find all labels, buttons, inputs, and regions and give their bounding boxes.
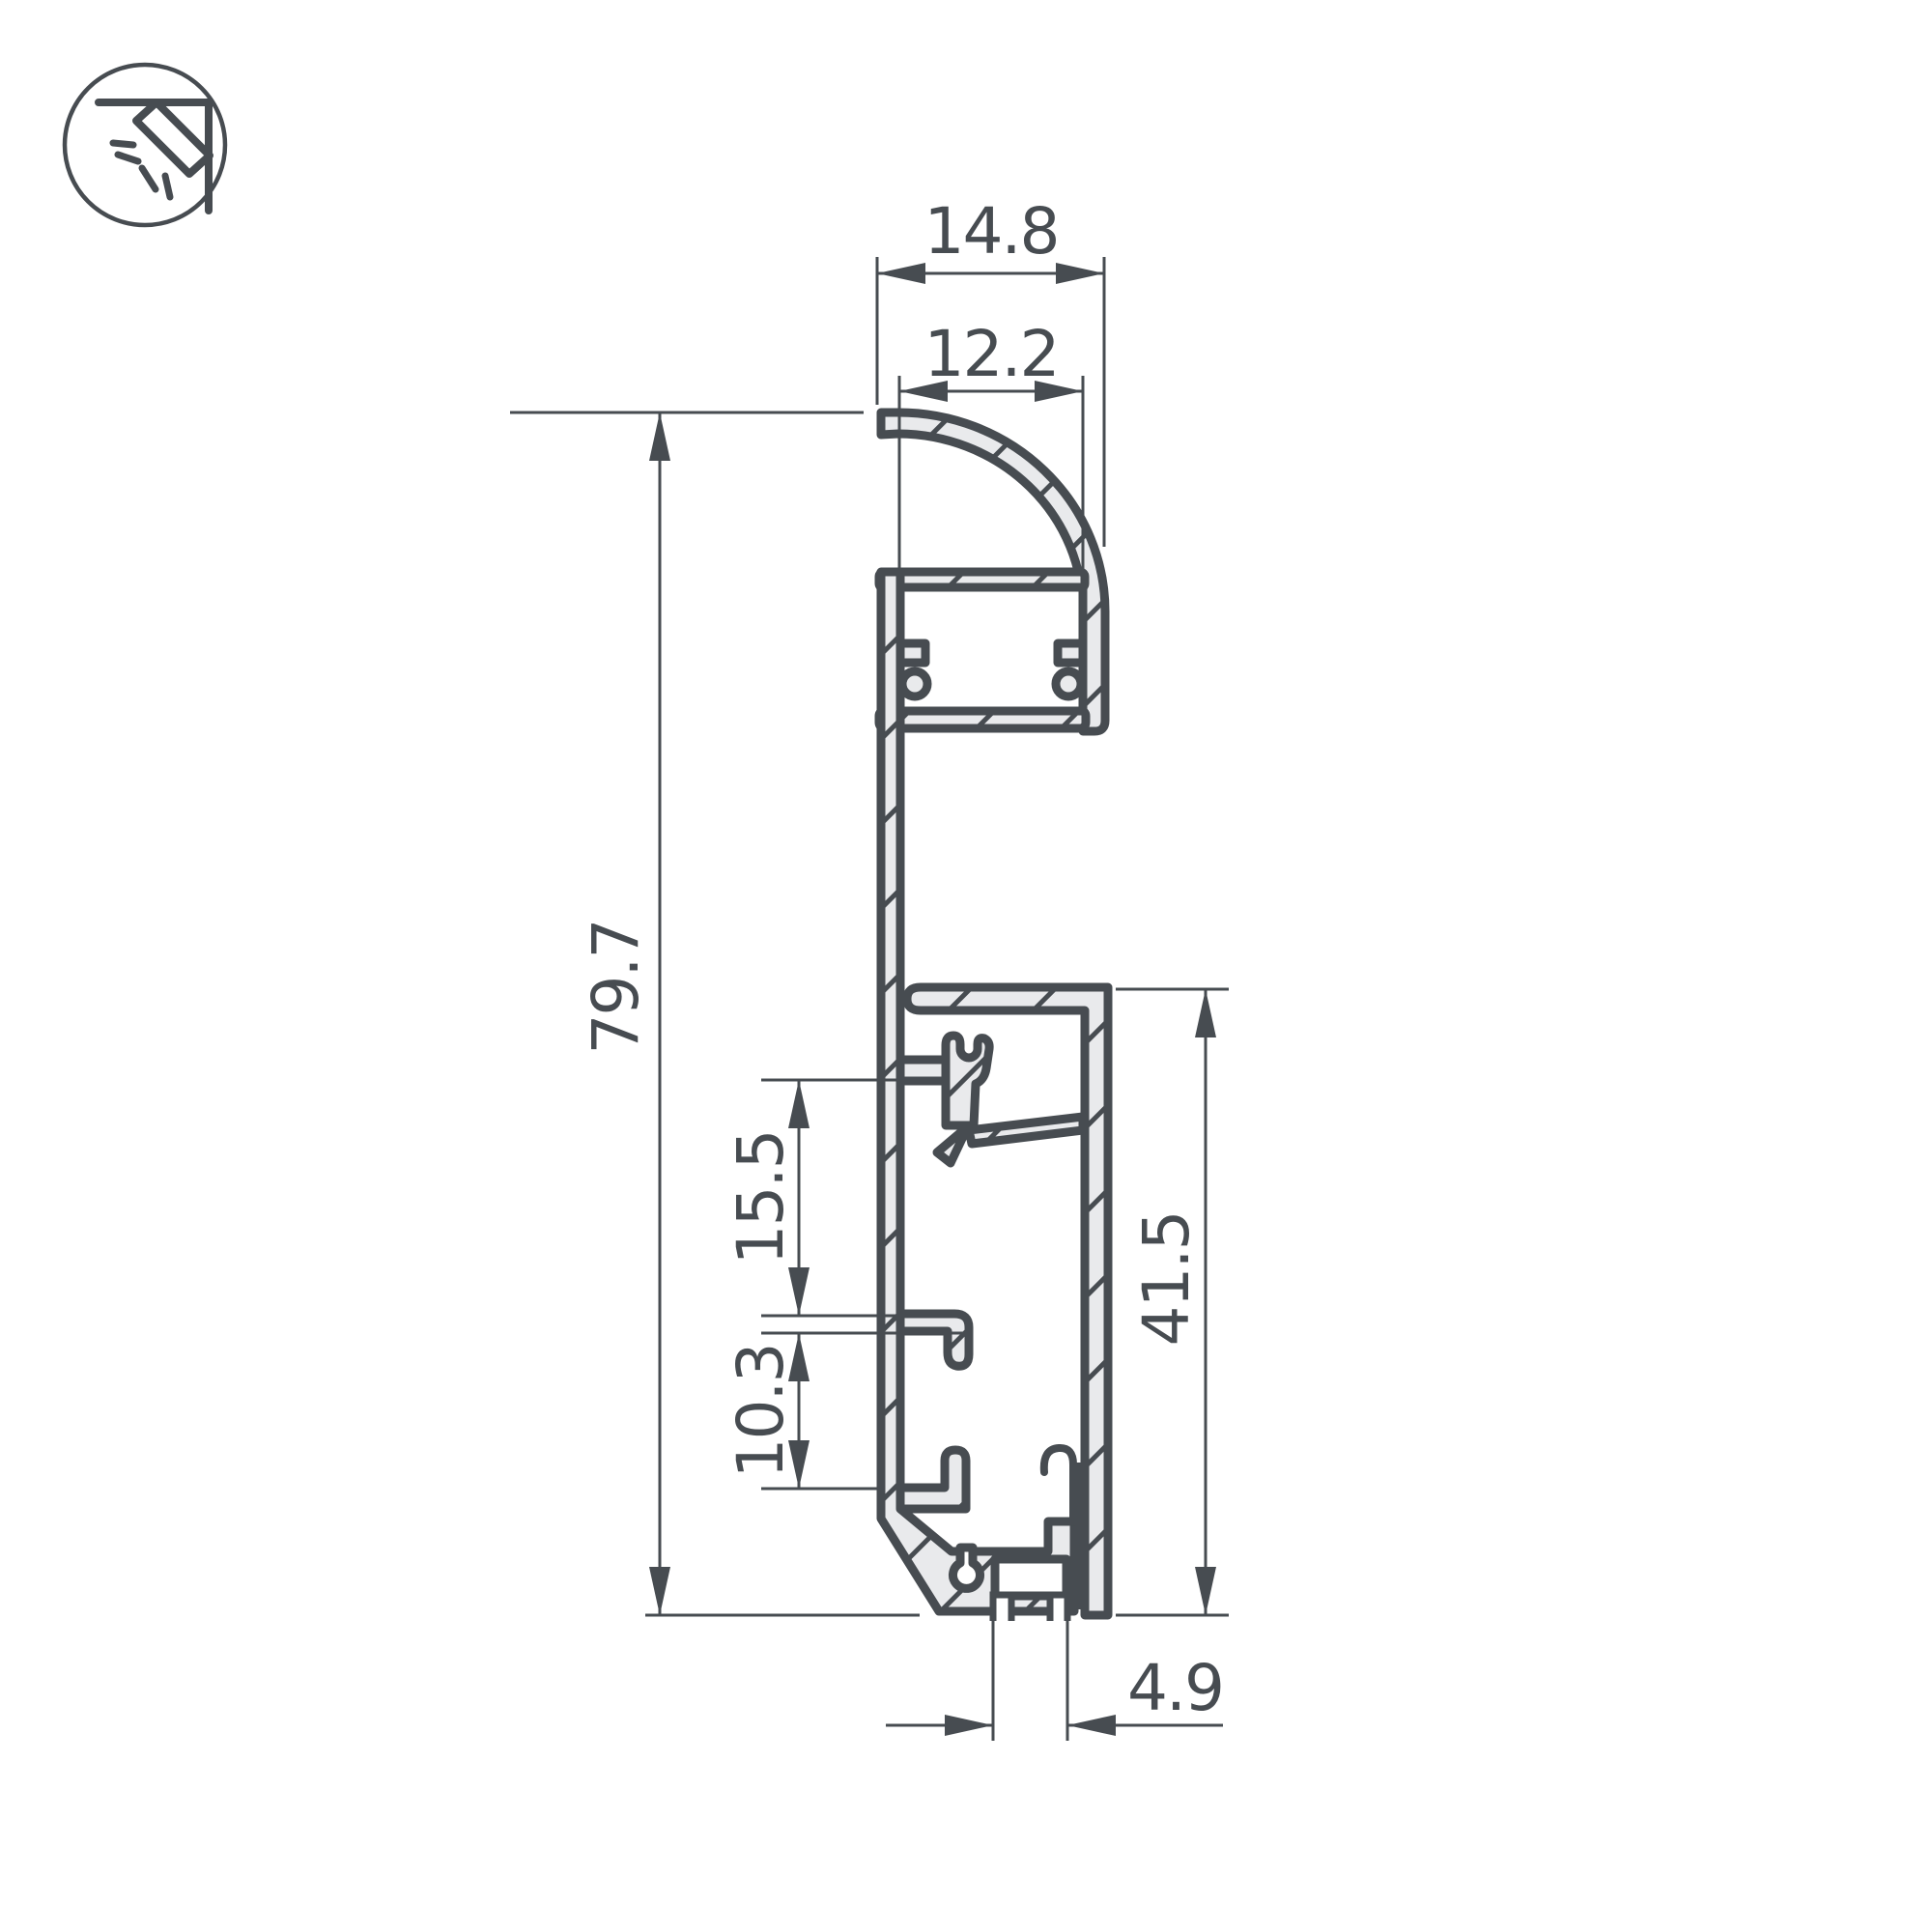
arrow-left: [945, 1715, 993, 1736]
snap-tongue: [1044, 1448, 1073, 1522]
lamp-icon: [136, 102, 210, 174]
middle-hook: [900, 1314, 969, 1366]
dimension-hook-spacing: 10.3: [724, 1333, 810, 1489]
dimension-top-width: 14.8: [877, 194, 1104, 284]
dim-label-top-width: 14.8: [924, 194, 1059, 269]
arrow-top: [649, 412, 670, 461]
dimension-top-inner-width: 12.2: [899, 317, 1083, 402]
bottom-hook: [900, 1450, 966, 1509]
dimension-base-height: 41.5: [1129, 989, 1216, 1615]
dim-label-bottom-slot-width: 4.9: [1127, 1651, 1223, 1725]
leaf-spring: [969, 1117, 1083, 1144]
dimensions: 14.8 12.2 79.7 15.5 10.3: [510, 194, 1229, 1741]
arrow-right: [1056, 263, 1104, 284]
arrow-bottom: [649, 1567, 670, 1615]
arrow-bottom: [788, 1267, 810, 1316]
arrow-top: [788, 1080, 810, 1128]
ceiling-corner-icon: [99, 102, 209, 211]
dim-label-hook-spacing: 10.3: [724, 1345, 798, 1479]
dim-label-top-inner-width: 12.2: [924, 317, 1059, 391]
spring-barb: [937, 1126, 968, 1163]
dimension-clip-to-hook: 15.5: [724, 1080, 810, 1316]
screw-boss: [946, 1036, 989, 1125]
dimension-overall-height: 79.7: [579, 412, 670, 1615]
arrow-left: [877, 263, 925, 284]
foot-screw-port: [953, 1548, 980, 1588]
dim-label-overall-height: 79.7: [579, 921, 653, 1055]
corner-light-icon: [65, 65, 225, 225]
profile-cross-section: [879, 412, 1108, 1621]
dimension-bottom-slot-width: 4.9: [886, 1651, 1223, 1736]
profile-technical-drawing: 14.8 12.2 79.7 15.5 10.3: [0, 0, 1932, 1932]
arrow-bottom: [1195, 1567, 1216, 1615]
arrow-right: [1067, 1715, 1116, 1736]
arrow-top: [1195, 989, 1216, 1037]
dim-label-clip-to-hook: 15.5: [724, 1131, 798, 1265]
dim-label-base-height: 41.5: [1129, 1212, 1204, 1347]
